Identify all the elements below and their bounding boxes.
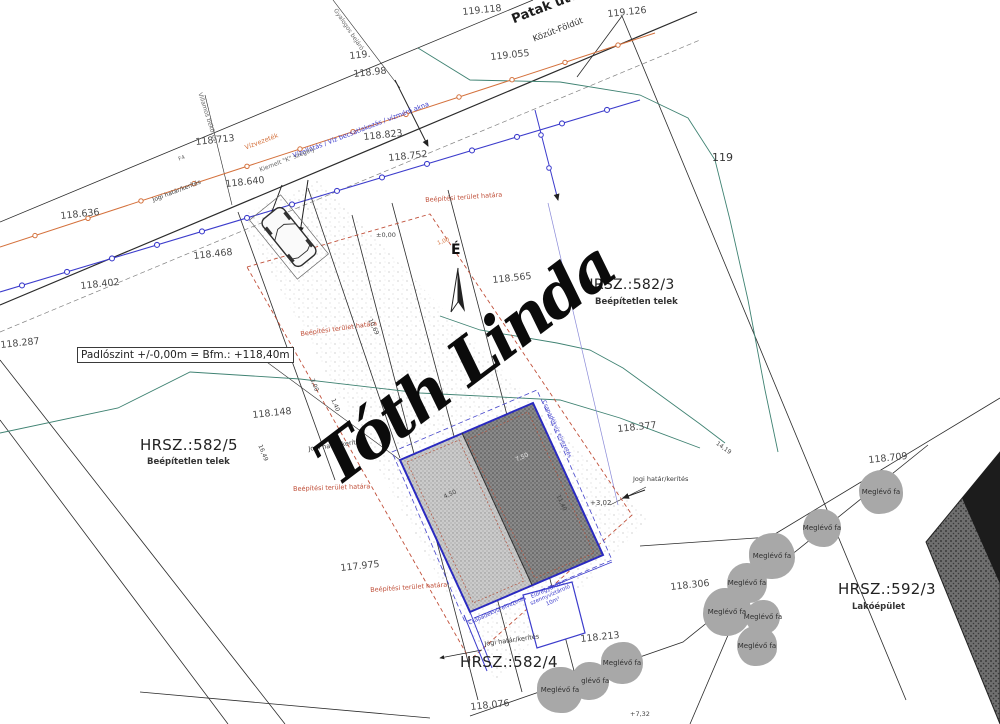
tree-label: Meglévő fa	[728, 579, 766, 587]
dimension: ±0,00	[376, 232, 396, 239]
dimension: +7,32	[630, 711, 650, 718]
dimension: +3,02	[590, 500, 611, 507]
north-arrow-icon	[451, 268, 465, 312]
floor-level-note: Padlószint +/-0,00m = Bfm.: +118,40m	[77, 347, 294, 363]
tree: Meglévő fa	[803, 509, 841, 547]
site-plan: Meglévő fa Meglévő fa Meglévő fa Meglévő…	[0, 0, 1000, 724]
tree-label: Meglévő fa	[603, 659, 641, 667]
parcel-status-592-3: Lakóépület	[852, 603, 905, 612]
tree-label: Meglévő fa	[708, 608, 746, 616]
tree-label: Meglévő fa	[753, 552, 791, 560]
tree-label: Meglévő fa	[541, 686, 579, 694]
neighbour-house	[926, 452, 1000, 724]
tree: Meglévő fa	[737, 626, 777, 666]
tree-label: Meglévő fa	[738, 642, 776, 650]
tree-label: Meglévő fa	[862, 488, 900, 496]
parcel-status-582-5: Beépítetlen telek	[147, 458, 230, 467]
tree-label: Meglévő fa	[744, 613, 782, 621]
tree: Meglévő fa	[537, 667, 583, 713]
tree: Meglévő fa	[859, 470, 903, 514]
tree-label: Meglévő fa	[803, 524, 841, 532]
north-symbol: É	[451, 242, 461, 258]
parcel-id-582-5: HRSZ.:582/5	[140, 438, 238, 453]
parcel-id-119: 119	[712, 152, 733, 163]
parcel-id-592-3: HRSZ.:592/3	[838, 582, 936, 597]
parcel-id-582-4: HRSZ.:582/4	[460, 655, 558, 670]
legal-fence-label: Jogi határ/kerítés	[633, 476, 688, 483]
